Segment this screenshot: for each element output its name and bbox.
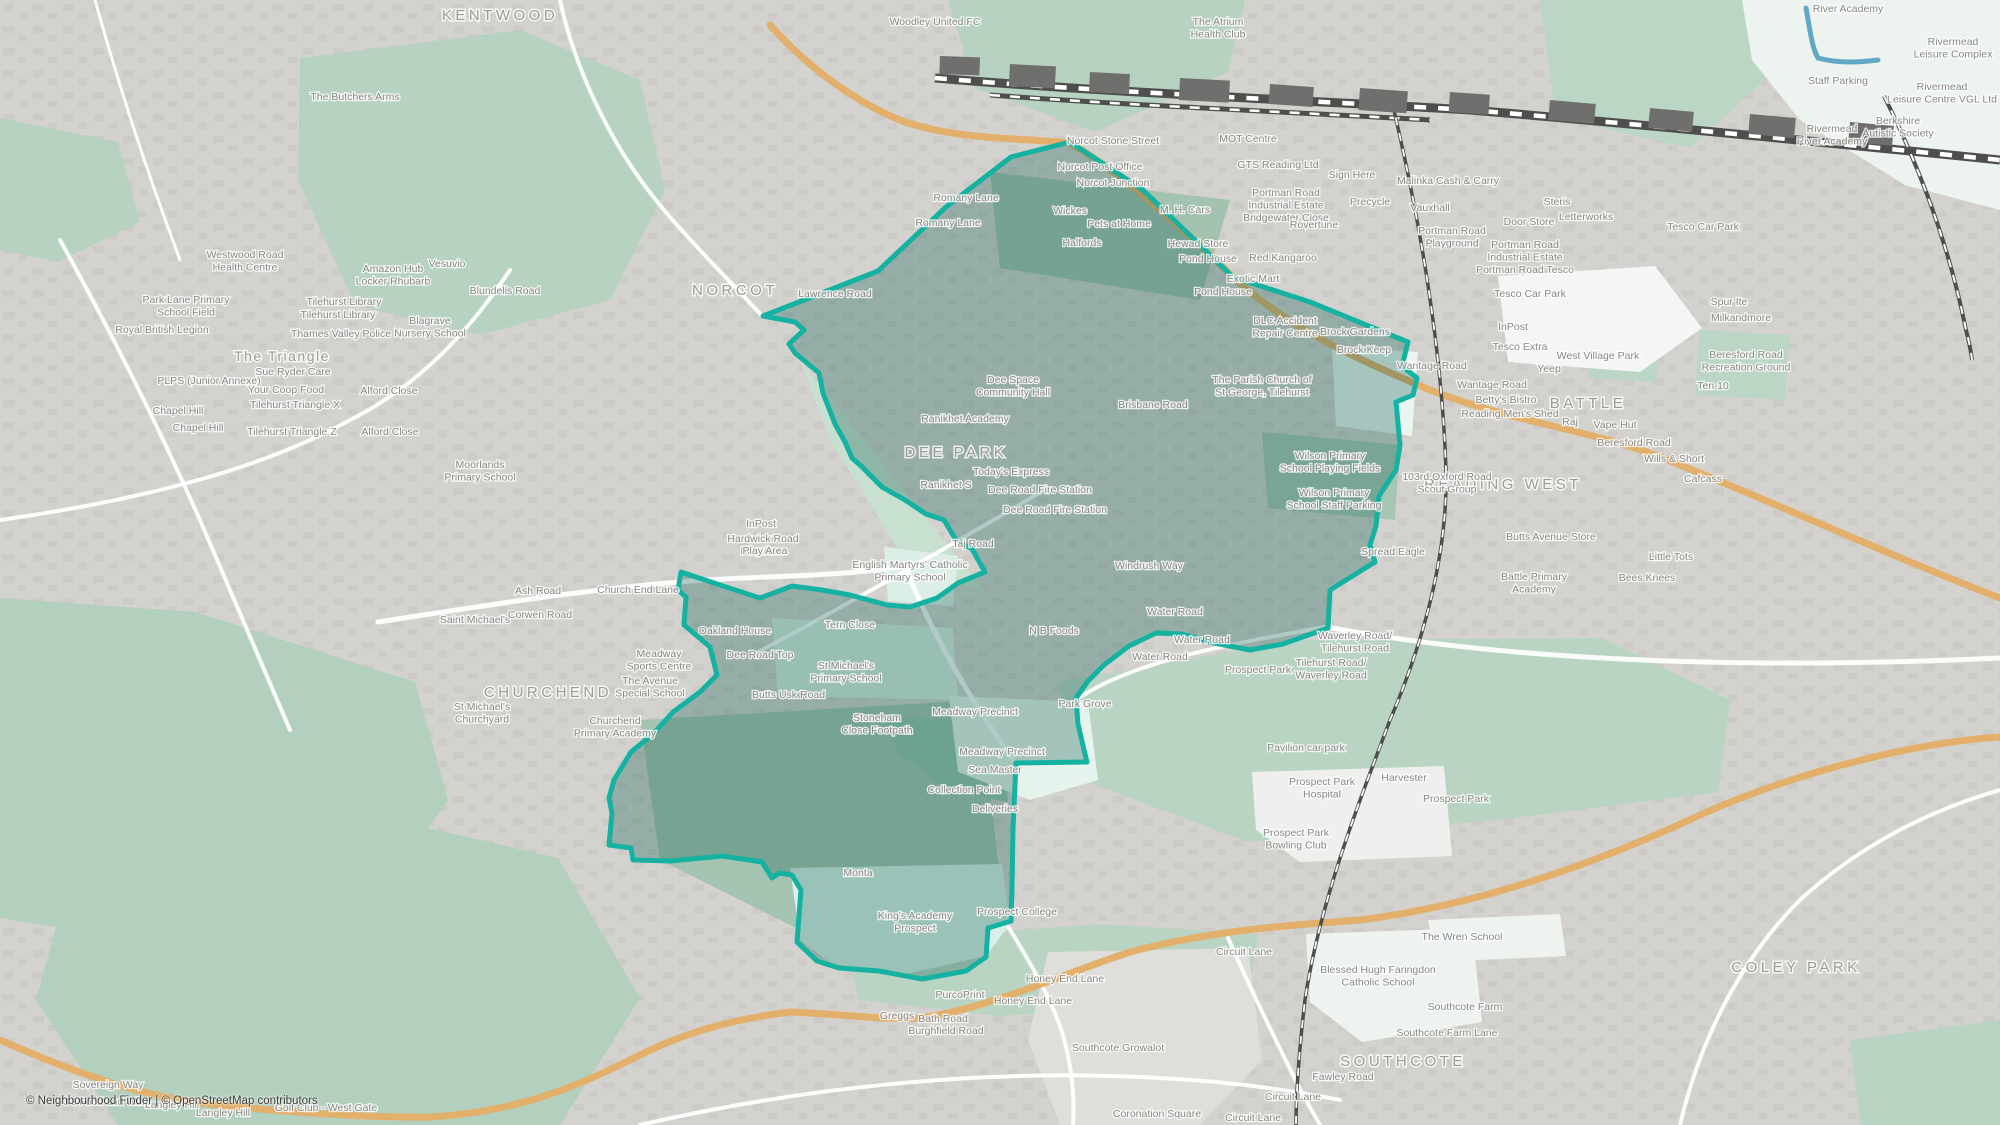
map-label: Hewad Store	[1168, 238, 1229, 250]
map-label: Pavilion car park	[1267, 742, 1345, 754]
industrial-building	[1089, 72, 1130, 94]
industrial-building	[1449, 92, 1490, 115]
map-label: Windrush Way	[1115, 560, 1184, 572]
map-label: Circuit Lane	[1216, 946, 1272, 958]
map-attribution: © Neighbourhood Finder | © OpenStreetMap…	[26, 1095, 318, 1107]
map-label: RivermeadRiver Academy	[1797, 123, 1868, 148]
map-label: Prospect Park	[1225, 664, 1292, 676]
map-label: Westwood RoadHealth Centre	[207, 249, 284, 274]
industrial-building	[1648, 108, 1694, 132]
map-label: Tilehurst Triangle X	[250, 399, 340, 411]
industrial-building	[1009, 64, 1056, 88]
map-label: Ash Road	[515, 585, 561, 597]
map-label: Norcot Post Office	[1057, 161, 1142, 173]
map-label: Door Store	[1504, 216, 1555, 228]
map-label: Romany Lane	[933, 192, 999, 204]
map-label: PLPS (Junior Annexe)	[157, 375, 260, 387]
map-label: Blundells Road	[470, 285, 541, 297]
map-label: Prospect College	[977, 906, 1057, 918]
industrial-building	[1548, 100, 1596, 124]
map-label: Butts Avenue Store	[1506, 531, 1596, 543]
map-label: Bees Knees	[1619, 572, 1676, 584]
map-label: The AtriumHealth Club	[1191, 16, 1246, 41]
map-label: Yeep	[1537, 363, 1561, 375]
map-label: Brock Keep	[1337, 344, 1391, 356]
map-label: InPost	[746, 518, 776, 530]
map-label: Fawley Road	[1312, 1071, 1373, 1083]
map-label: Burghfield Road	[908, 1025, 983, 1037]
map-label: Prospect Park	[1423, 793, 1490, 805]
map-label: Sea Master	[968, 764, 1022, 776]
industrial-building	[1269, 84, 1314, 107]
map-label: Vesuvio	[429, 258, 466, 270]
map-label: Saint Michael's	[440, 614, 510, 626]
map-label: Vape Hut	[1594, 419, 1637, 431]
map-label: Thames Valley Police	[291, 328, 391, 340]
map-label: Monta	[843, 867, 872, 879]
map-label: Butts	[752, 689, 776, 701]
map-label: Tesco Car Park	[1494, 288, 1567, 300]
map-label: Honey End Lane	[1026, 973, 1104, 985]
industrial-building	[1179, 78, 1230, 103]
map-label: Chapel Hill	[173, 422, 224, 434]
map-label: N B Foods	[1029, 625, 1079, 637]
map-label: Betty's Bistro	[1476, 394, 1537, 406]
map-label: Southcote Growalot	[1072, 1042, 1164, 1054]
map-label: Waverley Road/Tilehurst Road	[1318, 630, 1392, 655]
area-label: DEE PARK	[905, 444, 1008, 461]
map-label: Pond House	[1194, 286, 1252, 298]
area-label: NORCOT	[692, 282, 778, 299]
map-label: Exotic Mart	[1227, 273, 1280, 285]
map-label: Precycle	[1350, 196, 1390, 208]
map-label: Alford Close	[360, 385, 417, 397]
map-label: Little Tots	[1649, 551, 1693, 563]
map-label: Red Kangaroo	[1249, 252, 1317, 264]
map-label: PurcoPrint	[935, 989, 984, 1001]
map-label: Letterworks	[1559, 211, 1613, 223]
map-label: Reading Men's Shed	[1461, 408, 1558, 420]
map-label: Raj	[1562, 416, 1578, 428]
map-label: Circuit Lane	[1265, 1091, 1321, 1103]
map-label: Norcot Stone Street	[1067, 135, 1159, 147]
map-label: Cafcass	[1684, 473, 1722, 485]
map-label: Spread Eagle	[1361, 546, 1425, 558]
map-label: Water Road	[1132, 651, 1188, 663]
map-label: Norcot Junction	[1077, 177, 1150, 189]
map-label: Romany Lane	[915, 217, 981, 229]
map-label: Wantage Road	[1457, 379, 1527, 391]
map-label: M. H. Cars	[1160, 204, 1210, 216]
map-label: Honey End Lane	[994, 995, 1072, 1007]
map-label: Ranikhet S	[920, 479, 971, 491]
map-label: Dee Road Top	[727, 649, 794, 661]
area-label: BATTLE	[1550, 395, 1627, 412]
map-label: River Academy	[1813, 3, 1884, 15]
map-label: Pets at Home	[1087, 218, 1151, 230]
map-label: Sovereign Way	[73, 1079, 145, 1091]
industrial-building	[1358, 88, 1407, 113]
map-label: Sue Ryder Care	[255, 366, 330, 378]
map-label: Bath Road	[918, 1013, 968, 1025]
map-label: Water Road	[1147, 606, 1203, 618]
map-label: Harvester	[1381, 772, 1427, 784]
map-label: Tilehurst Library	[301, 309, 377, 321]
map-label: Brisbane Road	[1118, 399, 1188, 411]
map-label: Park Grove	[1058, 698, 1111, 710]
area-label: CHURCHEND	[484, 684, 612, 701]
map-label: Royal British Legion	[115, 324, 209, 336]
map-label: Play Area	[743, 545, 788, 557]
map-label: Halfords	[1062, 237, 1101, 249]
map-label: Malinka Cash & Carry	[1397, 175, 1500, 187]
area-label: SOUTHCOTE	[1340, 1053, 1466, 1070]
map-label: Church End Lane	[597, 584, 679, 596]
map-label: Dee SpaceCommunity Hall	[976, 374, 1050, 399]
map-label: Sign Here	[1329, 169, 1376, 181]
map-label: DLC AccidentRepair Centre	[1252, 315, 1318, 340]
map-label: St Michael'sChurchyard	[454, 701, 510, 726]
map-label: Ten 10	[1697, 380, 1729, 392]
map-label: Deliveries	[972, 803, 1018, 815]
map-label: MOT Centre	[1219, 133, 1277, 145]
map-label: Wilson PrimarySchool Playing Fields	[1280, 450, 1380, 475]
map-label: The Wren School	[1422, 931, 1503, 943]
map-label: Steris	[1544, 196, 1571, 208]
map-label: Milkandmore	[1711, 312, 1771, 324]
map-label: Pond House	[1179, 253, 1237, 265]
map-label: Water Road	[1174, 634, 1230, 646]
map-label: Woodley United FC	[890, 16, 981, 28]
area-label: KENTWOOD	[442, 7, 558, 24]
map-label: Amazon HubLocker Rhubarb	[356, 263, 431, 288]
map-label: Beresford Road	[1597, 437, 1671, 449]
map-label: Chapel Hill	[153, 405, 204, 417]
map-label: Southcote Farm	[1428, 1001, 1503, 1013]
map-label: Oakland House	[699, 625, 772, 637]
map-label: St Michael'sPrimary School	[810, 660, 881, 685]
map-label: Tilehurst Library	[307, 296, 383, 308]
map-label: Dee Road Fire Station	[988, 484, 1092, 496]
attribution-text: © Neighbourhood Finder | © OpenStreetMap…	[26, 1095, 318, 1107]
map-label: Tilehurst Road/Waverley Road	[1295, 657, 1367, 682]
map-label: Rovertune	[1290, 219, 1339, 231]
map-label: Brock Gardens	[1320, 326, 1390, 338]
map-label: Lawrence Road	[798, 288, 872, 300]
map-label: Alford Close	[361, 426, 418, 438]
map-label: Taj Road	[952, 538, 994, 550]
map-label: Wills & Short	[1644, 453, 1704, 465]
map-label: Prospect ParkBowling Club	[1263, 827, 1330, 852]
map-label: Wickes	[1053, 205, 1087, 217]
map-label: Beresford RoadRecreation Ground	[1702, 349, 1791, 374]
map-label: Meadway Precinct	[932, 706, 1018, 718]
map-label: Greggs	[880, 1010, 914, 1022]
map-label: Tern Close	[825, 619, 875, 631]
map-label: Tesco Car Park	[1667, 221, 1740, 233]
map-label: Langley Hill	[196, 1107, 250, 1119]
map-label: Spur Ite	[1711, 296, 1748, 308]
map-label: InPost	[1498, 321, 1528, 333]
map-label: Corwen Road	[508, 609, 572, 621]
map-label: Collection Point	[928, 784, 1001, 796]
map-label: Today's Express	[973, 466, 1049, 478]
map-label: West Village Park	[1557, 350, 1640, 362]
map-label: Tesco Extra	[1493, 341, 1548, 353]
map-label: Tilehurst Triangle Z	[247, 426, 337, 438]
map-label: Meadway Precinct	[959, 746, 1045, 758]
area-label: COLEY PARK	[1731, 959, 1860, 976]
map-label: GTS Reading Ltd	[1237, 159, 1318, 171]
map-container[interactable]: KENTWOODNORCOTDEE PARKBATTLECHURCHENDREA…	[0, 0, 2000, 1125]
map-label: Ranikhet Academy	[921, 413, 1009, 425]
area-label: The Triangle	[234, 348, 330, 364]
map-label: Circuit Lane	[1225, 1112, 1281, 1124]
industrial-building	[1748, 114, 1796, 138]
map-label: Vauxhall	[1410, 202, 1450, 214]
map-label: The Butchers Arms	[310, 91, 399, 103]
map-label: Staff Parking	[1808, 75, 1868, 87]
map-label: Southcote Farm Lane	[1397, 1027, 1498, 1039]
map-label: Dee Road Fire Station	[1003, 504, 1107, 516]
industrial-building	[939, 56, 980, 75]
map-canvas[interactable]: KENTWOODNORCOTDEE PARKBATTLECHURCHENDREA…	[0, 0, 2000, 1125]
map-label: Wantage Road	[1397, 360, 1467, 372]
map-label: The AvenueSpecial School	[615, 675, 684, 700]
map-label: The Parish Church ofSt George, Tilehurst	[1212, 374, 1311, 399]
map-label: Usk Road	[779, 689, 825, 701]
map-label: Wilson PrimarySchool Staff Parking	[1287, 487, 1382, 512]
map-label: Coronation Square	[1113, 1108, 1201, 1120]
map-label: Portman RoadPlayground	[1418, 225, 1486, 250]
